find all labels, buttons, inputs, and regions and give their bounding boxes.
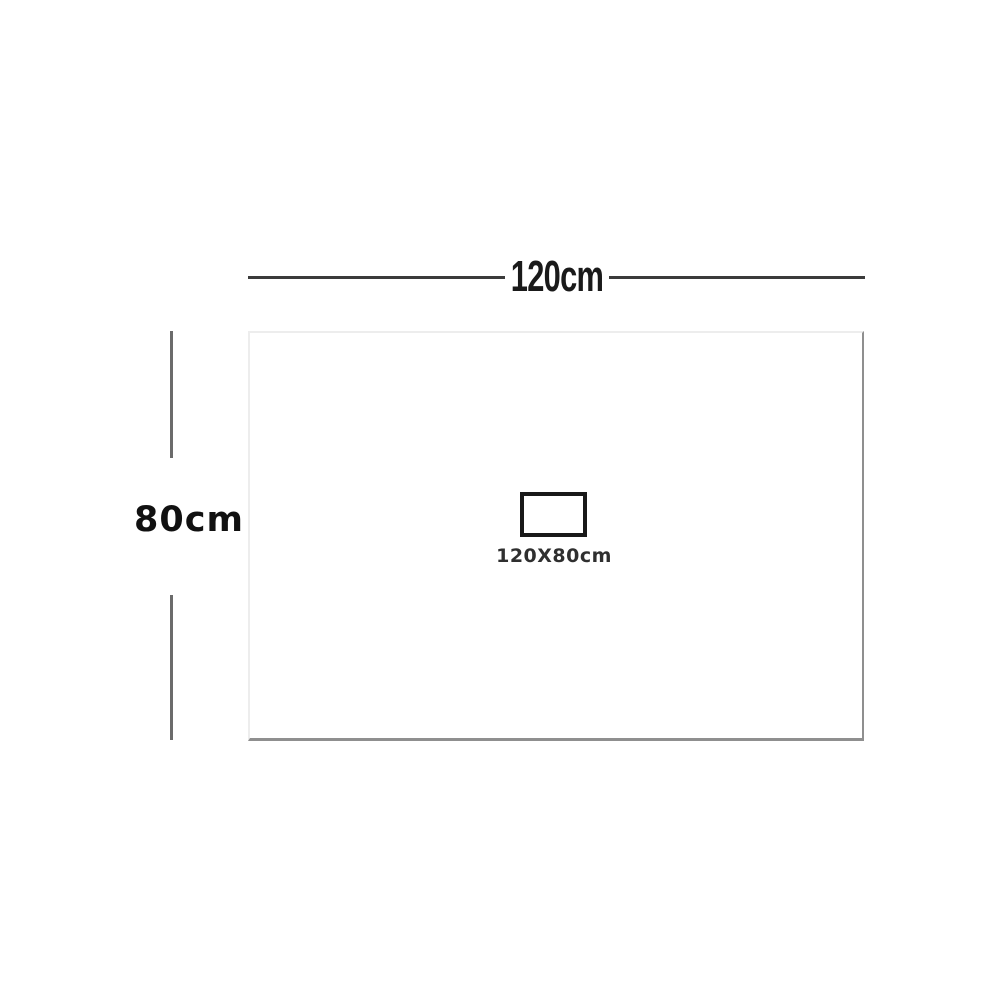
height-dimension-label: 80cm (129, 503, 249, 538)
width-dimension-label-box: 120cm (505, 255, 609, 299)
height-dimension-line-bottom (170, 595, 173, 740)
height-dimension-line-top (170, 331, 173, 458)
width-dimension-line-left (248, 276, 505, 279)
diagram-canvas: 120cm 80cm 120X80cm (0, 0, 1000, 1000)
width-dimension: 120cm (248, 256, 865, 298)
width-dimension-line-right (609, 276, 866, 279)
inner-size-rectangle (520, 492, 587, 537)
inner-size-label: 120X80cm (494, 546, 614, 567)
width-dimension-label: 120cm (510, 255, 602, 299)
